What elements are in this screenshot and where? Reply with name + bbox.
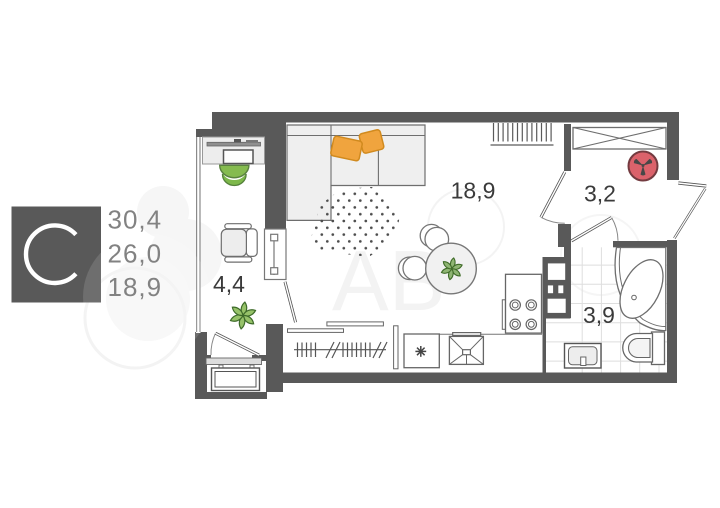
svg-text:18,9: 18,9 xyxy=(451,178,496,204)
svg-text:3,9: 3,9 xyxy=(583,302,615,328)
svg-text:26,0: 26,0 xyxy=(108,239,163,269)
svg-text:4,4: 4,4 xyxy=(213,271,245,297)
svg-text:18,9: 18,9 xyxy=(108,272,163,302)
svg-text:30,4: 30,4 xyxy=(108,205,163,235)
svg-text:3,2: 3,2 xyxy=(584,181,616,207)
